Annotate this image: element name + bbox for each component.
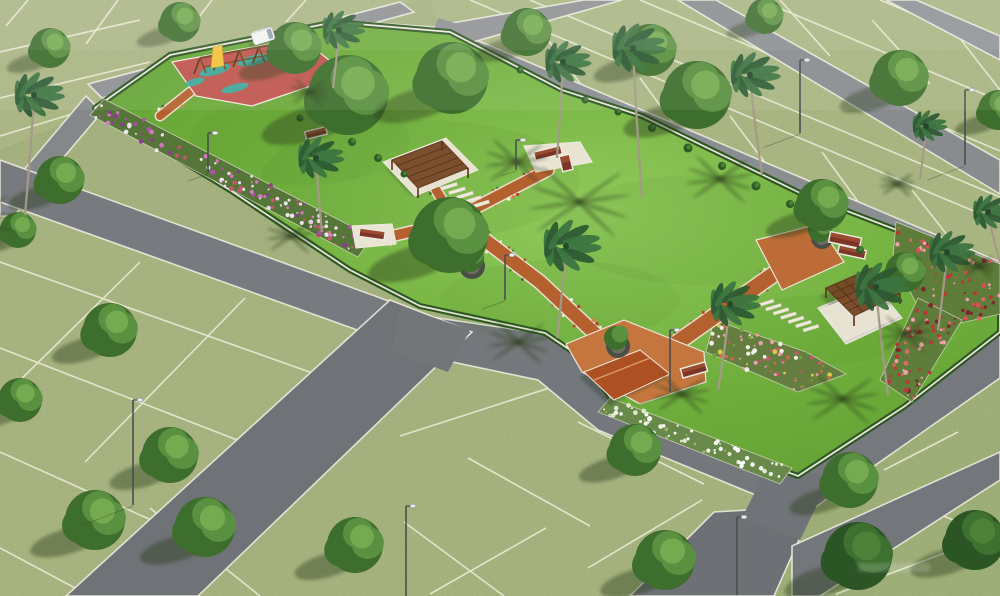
- flower: [647, 416, 652, 421]
- path-flower: [509, 269, 511, 271]
- flower: [183, 156, 187, 160]
- flower: [685, 434, 687, 436]
- flower: [923, 311, 928, 316]
- flower: [285, 213, 289, 217]
- flower: [694, 442, 697, 445]
- tree-canopy-highlight: [631, 431, 653, 453]
- tree-canopy-highlight: [16, 384, 34, 402]
- flower: [175, 154, 179, 158]
- flower: [677, 425, 679, 427]
- flower: [271, 205, 275, 209]
- flower: [778, 353, 782, 357]
- flower: [745, 456, 749, 460]
- flower: [921, 377, 923, 379]
- shrub-highlight: [351, 139, 355, 143]
- flower: [746, 351, 750, 355]
- flower: [769, 472, 773, 476]
- path-flower: [494, 205, 496, 207]
- tree-canopy-highlight: [200, 505, 225, 530]
- flower: [948, 321, 951, 324]
- flower: [664, 427, 668, 431]
- palm-crown: [873, 284, 879, 290]
- flower: [303, 203, 305, 205]
- flower: [780, 463, 783, 466]
- flower: [953, 282, 955, 284]
- flower: [792, 388, 795, 391]
- flower: [116, 111, 119, 114]
- flower: [770, 340, 774, 344]
- flower: [314, 225, 317, 228]
- flower: [756, 333, 759, 336]
- flower: [259, 198, 261, 200]
- flower: [984, 306, 987, 309]
- path-flower: [429, 192, 432, 195]
- flower: [716, 439, 720, 443]
- flower: [232, 180, 236, 184]
- path-flower: [595, 322, 598, 325]
- flower: [178, 145, 181, 148]
- flower: [327, 236, 331, 240]
- flower: [775, 463, 778, 466]
- shrub: [374, 154, 382, 162]
- flower: [909, 370, 912, 373]
- flower: [732, 445, 734, 447]
- aerial-park-render: [0, 0, 1000, 596]
- flower: [266, 193, 269, 196]
- flower: [287, 199, 290, 202]
- flower: [224, 185, 226, 187]
- flower: [709, 341, 714, 346]
- flower: [947, 325, 951, 329]
- flower: [644, 412, 648, 416]
- flower: [942, 340, 946, 344]
- flower: [605, 411, 607, 413]
- flower: [794, 356, 798, 360]
- flower: [718, 350, 723, 355]
- flower: [614, 406, 619, 411]
- flower: [977, 316, 982, 321]
- flower: [309, 225, 312, 228]
- shrub-highlight: [755, 183, 760, 188]
- flower: [905, 349, 910, 354]
- path-flower: [496, 187, 498, 189]
- flower: [250, 190, 254, 194]
- flower: [300, 221, 304, 225]
- flower: [299, 202, 302, 205]
- flower: [300, 211, 303, 214]
- flower: [210, 170, 215, 175]
- flower: [641, 409, 646, 414]
- flower: [973, 291, 977, 295]
- flower: [947, 332, 949, 334]
- flower: [150, 138, 154, 142]
- flower: [782, 359, 785, 362]
- path-flower: [508, 246, 510, 248]
- flower: [751, 351, 755, 355]
- flower: [806, 352, 808, 354]
- flower: [120, 122, 124, 126]
- flower: [674, 432, 677, 435]
- flower: [972, 303, 975, 306]
- flower: [753, 338, 755, 340]
- flower: [795, 351, 799, 355]
- flower: [155, 148, 159, 152]
- flower: [333, 234, 336, 237]
- flower: [988, 283, 991, 286]
- flower: [231, 172, 233, 174]
- path-flower: [573, 325, 576, 328]
- flower: [702, 450, 705, 453]
- flower: [275, 187, 277, 189]
- flower: [118, 115, 120, 117]
- flower: [754, 345, 756, 347]
- flower: [342, 236, 344, 238]
- flower: [820, 370, 823, 373]
- flower: [931, 325, 935, 329]
- flower: [739, 358, 741, 360]
- flower: [626, 403, 631, 408]
- flower: [237, 170, 240, 173]
- flower: [161, 133, 164, 136]
- flower: [639, 420, 642, 423]
- flower: [251, 185, 254, 188]
- flower: [771, 462, 773, 464]
- flower: [255, 180, 258, 183]
- flower: [720, 326, 724, 330]
- flower: [774, 362, 777, 365]
- lamp-head: [137, 398, 143, 402]
- flower: [267, 206, 271, 210]
- flower: [99, 115, 101, 117]
- lamp-head: [741, 515, 747, 519]
- flower: [728, 341, 731, 344]
- scene-canvas: [0, 0, 1000, 596]
- flower: [783, 372, 786, 375]
- flower: [221, 167, 223, 169]
- flower: [140, 133, 142, 135]
- flower: [928, 371, 931, 374]
- flower: [905, 356, 907, 358]
- flower: [706, 449, 710, 453]
- path-flower: [592, 318, 595, 321]
- shrub: [348, 138, 356, 146]
- flower: [286, 206, 289, 209]
- flower: [935, 273, 937, 275]
- flower: [895, 242, 899, 246]
- flower: [991, 301, 995, 305]
- tree-canopy-highlight: [818, 186, 840, 208]
- flower: [238, 181, 241, 184]
- flower: [329, 233, 333, 237]
- flower: [736, 460, 740, 464]
- flower: [748, 336, 751, 339]
- flower: [739, 464, 744, 469]
- flower: [631, 407, 633, 409]
- flower: [918, 383, 921, 386]
- flower: [168, 151, 172, 155]
- flower: [112, 122, 115, 125]
- shrub-highlight: [789, 201, 793, 205]
- tree-canopy-highlight: [15, 217, 30, 232]
- flower: [815, 376, 817, 378]
- flower: [342, 243, 347, 248]
- flower: [928, 303, 933, 308]
- flower: [909, 239, 912, 242]
- flower: [758, 341, 763, 346]
- flower: [904, 361, 909, 366]
- shrub-highlight: [377, 155, 381, 159]
- flower: [142, 118, 146, 122]
- flower: [922, 249, 925, 252]
- tree-canopy-highlight: [845, 460, 869, 484]
- flower: [94, 116, 97, 119]
- flower: [134, 122, 138, 126]
- atmospheric-haze: [0, 0, 1000, 50]
- path-flower: [523, 173, 526, 176]
- path-flower: [763, 268, 765, 270]
- flower: [912, 397, 914, 399]
- flower: [290, 213, 295, 218]
- flower: [239, 185, 243, 189]
- flower: [981, 283, 986, 288]
- flower: [937, 334, 940, 337]
- flower: [713, 353, 717, 357]
- flower: [149, 130, 154, 135]
- tree-canopy-highlight: [902, 258, 919, 275]
- flower: [954, 318, 956, 320]
- flower: [727, 452, 731, 456]
- flower: [966, 298, 970, 302]
- flower: [325, 215, 327, 217]
- flower: [733, 344, 736, 347]
- shrub-highlight: [403, 171, 407, 175]
- path-flower: [702, 311, 705, 314]
- flower: [989, 295, 993, 299]
- flower: [128, 125, 130, 127]
- flower: [964, 292, 966, 294]
- flower: [902, 369, 904, 371]
- flower: [921, 287, 926, 292]
- flower: [905, 380, 909, 384]
- flower: [113, 114, 118, 119]
- tree-canopy-highlight: [970, 518, 995, 543]
- path-flower: [577, 305, 580, 308]
- flower: [925, 321, 929, 325]
- flower: [895, 354, 899, 358]
- path-flower: [507, 197, 510, 200]
- flower: [911, 345, 913, 347]
- flower: [325, 220, 328, 223]
- flower: [222, 181, 224, 183]
- flower: [713, 449, 715, 451]
- path-flower: [512, 249, 514, 251]
- flower: [782, 372, 784, 374]
- flower: [719, 447, 723, 451]
- flower: [932, 294, 935, 297]
- flower: [108, 111, 111, 114]
- shrub-highlight: [687, 145, 692, 150]
- shrub: [684, 144, 693, 153]
- flower: [690, 429, 693, 432]
- flower: [717, 335, 720, 338]
- flower: [963, 316, 967, 320]
- flower: [968, 278, 971, 281]
- flower: [803, 379, 805, 381]
- watermark-smudge: [858, 563, 930, 572]
- flower: [742, 367, 745, 370]
- planter-tree-highlight: [612, 326, 629, 343]
- flower: [227, 172, 230, 175]
- flower: [124, 130, 129, 135]
- flower: [665, 436, 668, 439]
- flower: [916, 248, 921, 253]
- flower: [770, 370, 772, 372]
- flower: [348, 247, 350, 249]
- flower: [976, 302, 981, 307]
- flower: [229, 186, 234, 191]
- flower: [714, 452, 716, 454]
- flower: [764, 366, 766, 368]
- flower: [296, 199, 299, 202]
- flower: [776, 347, 780, 351]
- flower: [740, 335, 742, 337]
- flower: [822, 365, 824, 367]
- flower: [935, 280, 937, 282]
- flower: [763, 355, 767, 359]
- flower: [750, 462, 755, 467]
- flower: [680, 440, 683, 443]
- flower: [658, 424, 663, 429]
- flower: [901, 373, 904, 376]
- path-flower: [516, 193, 519, 196]
- lamp-head: [509, 253, 515, 257]
- flower: [932, 288, 934, 290]
- flower: [139, 139, 143, 143]
- flower: [263, 195, 266, 198]
- flower: [106, 121, 111, 126]
- palm-crown: [727, 301, 733, 307]
- flower: [896, 231, 900, 235]
- flower: [940, 328, 943, 331]
- flower: [801, 387, 803, 389]
- flower: [827, 376, 831, 380]
- flower: [160, 146, 162, 148]
- flower: [915, 379, 918, 382]
- flower: [744, 367, 749, 372]
- flower: [271, 198, 275, 202]
- path-flower: [760, 271, 762, 273]
- flower: [740, 338, 743, 341]
- flower: [894, 367, 897, 370]
- path-flower: [766, 289, 768, 291]
- tree-canopy-highlight: [56, 163, 76, 183]
- flower: [733, 446, 737, 450]
- flower: [730, 357, 734, 361]
- flower: [334, 226, 338, 230]
- flower: [786, 355, 790, 359]
- flower: [644, 422, 648, 426]
- flower: [725, 355, 728, 358]
- flower: [316, 209, 318, 211]
- flower: [766, 364, 768, 366]
- lamp-head: [674, 328, 680, 332]
- flower: [979, 313, 983, 317]
- flower: [603, 408, 605, 410]
- flower: [772, 349, 777, 354]
- flower: [312, 216, 315, 219]
- path-flower: [512, 195, 515, 198]
- shrub-highlight: [859, 247, 863, 251]
- palm-crown: [923, 123, 929, 129]
- flower: [819, 361, 822, 364]
- tree-canopy-highlight: [444, 208, 476, 240]
- flower: [770, 349, 773, 352]
- path-flower: [551, 305, 553, 307]
- flower: [687, 437, 690, 440]
- flower: [270, 186, 272, 188]
- flower: [904, 342, 907, 345]
- flower: [324, 233, 328, 237]
- flower: [295, 213, 299, 217]
- flower: [799, 356, 803, 360]
- flower: [981, 297, 985, 301]
- path-flower: [690, 320, 692, 322]
- lamp-head: [410, 504, 416, 508]
- flower: [892, 363, 895, 366]
- flower: [739, 328, 743, 332]
- flower: [135, 133, 137, 135]
- flower: [889, 375, 892, 378]
- flower: [920, 246, 922, 248]
- flower: [989, 287, 991, 289]
- shrub: [856, 246, 864, 254]
- flower: [907, 394, 909, 396]
- flower: [711, 337, 714, 340]
- path-flower: [524, 258, 527, 261]
- flower: [711, 332, 715, 336]
- tree-canopy-highlight: [90, 498, 115, 523]
- flower: [351, 246, 354, 249]
- flower: [746, 363, 748, 365]
- flower: [911, 318, 915, 322]
- flower: [793, 378, 796, 381]
- flower: [276, 197, 280, 201]
- flower: [633, 410, 638, 415]
- lamp-head: [520, 138, 526, 142]
- path-flower: [570, 298, 573, 301]
- flower: [950, 273, 953, 276]
- flower: [683, 439, 687, 443]
- flower: [225, 181, 227, 183]
- flower: [970, 311, 973, 314]
- flower: [216, 159, 219, 162]
- flower: [230, 175, 233, 178]
- flower: [914, 395, 916, 397]
- flower: [961, 308, 965, 312]
- flower: [923, 241, 927, 245]
- palm-crown: [985, 209, 991, 215]
- flower: [668, 435, 670, 437]
- palm-crown: [944, 249, 950, 255]
- flower: [334, 243, 336, 245]
- path-flower: [521, 278, 524, 281]
- palm-crown: [313, 155, 319, 161]
- flower: [303, 219, 305, 221]
- flower: [811, 379, 814, 382]
- shrub-highlight: [721, 163, 725, 167]
- flower: [898, 227, 900, 229]
- flower: [932, 329, 936, 333]
